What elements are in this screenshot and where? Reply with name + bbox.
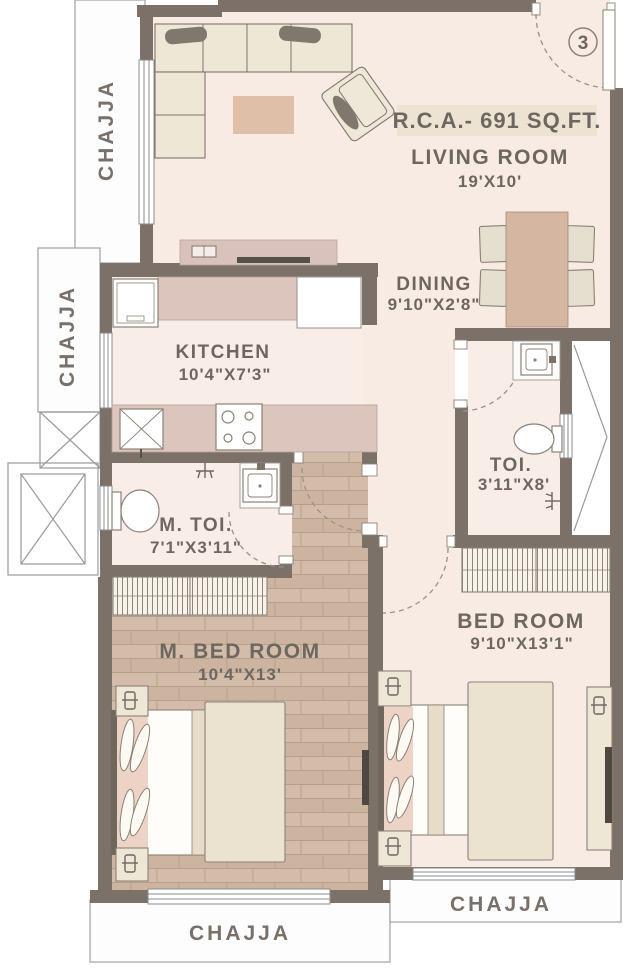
dining-dims: 9'10"X2'8" <box>388 295 481 314</box>
washbasin <box>513 341 560 380</box>
living-window <box>139 60 154 224</box>
tv-bedroom <box>605 747 612 823</box>
duct-floor-right <box>572 341 610 535</box>
floor-plan: 3 R.C.A.- 691 SQ.FT. LIVING ROOM 19'X10'… <box>0 0 623 970</box>
toilet-wc <box>112 490 159 532</box>
tv-console-living <box>180 240 337 265</box>
master-toilet-vent <box>100 486 112 530</box>
chajja-bottom-right: CHAJJA <box>450 893 552 916</box>
bedroom-name: BED ROOM <box>457 610 585 633</box>
nightstand <box>116 848 148 881</box>
dining-chair <box>566 226 594 263</box>
bedroom-window <box>413 868 575 880</box>
living-room-name: LIVING ROOM <box>411 146 569 169</box>
entry-floor <box>536 0 610 14</box>
toilet-dims: 3'11"X8' <box>478 475 550 494</box>
chajja-bottom-center: CHAJJA <box>189 922 291 945</box>
tv-console-bedroom <box>587 687 612 850</box>
bedroom-dims: 9'10"X13'1" <box>470 634 573 653</box>
kitchen-pass-opening <box>362 325 377 405</box>
dining-table <box>506 212 568 327</box>
master-bedroom-window <box>148 889 330 904</box>
master-bedroom-dims: 10'4"X13' <box>198 665 282 684</box>
corridor-passage-opening <box>368 477 383 524</box>
dining-chair <box>566 270 594 307</box>
tv-living <box>237 257 310 263</box>
master-toilet-dims: 7'1"X3'11" <box>150 538 242 557</box>
rug <box>233 96 294 134</box>
area-label: R.C.A.- 691 SQ.FT. <box>393 108 602 133</box>
corridor-floor <box>377 328 455 548</box>
dining-name: DINING <box>396 274 472 295</box>
duct-shaft-left <box>8 412 100 575</box>
nightstand <box>378 831 411 866</box>
tv-master-bedroom <box>362 750 369 805</box>
kitchen-window <box>100 333 112 408</box>
entrance-door-leaf <box>603 10 615 90</box>
unit-number: 3 <box>578 33 589 54</box>
living-room-dims: 19'X10' <box>458 172 522 191</box>
master-toilet-name: M. TOI. <box>159 515 232 536</box>
kitchen-platform <box>297 277 361 328</box>
toilet-name: TOI. <box>490 455 533 476</box>
mtoi-door-floor <box>280 512 292 562</box>
dining-chair <box>479 270 507 307</box>
nightstand <box>378 671 411 706</box>
wardrobe-master-bedroom <box>113 577 267 615</box>
floor-plan-drawing: 3 R.C.A.- 691 SQ.FT. LIVING ROOM 19'X10'… <box>0 0 623 970</box>
washbasin <box>240 463 280 508</box>
wardrobe-bedroom <box>462 548 610 592</box>
chajja-mid-left: CHAJJA <box>56 285 79 387</box>
master-bedroom-name: M. BED ROOM <box>159 640 320 663</box>
master-bed <box>111 702 285 862</box>
kitchen-name: KITCHEN <box>176 342 271 363</box>
toilet-wc <box>514 424 562 454</box>
dining-chair <box>479 226 507 263</box>
refrigerator <box>113 279 158 327</box>
stove <box>216 404 262 450</box>
bedroom-door-floor <box>383 535 453 548</box>
chajja-top-left: CHAJJA <box>95 79 118 181</box>
nightstand <box>116 686 148 716</box>
kitchen-dims: 10'4"X7'3" <box>179 365 272 384</box>
